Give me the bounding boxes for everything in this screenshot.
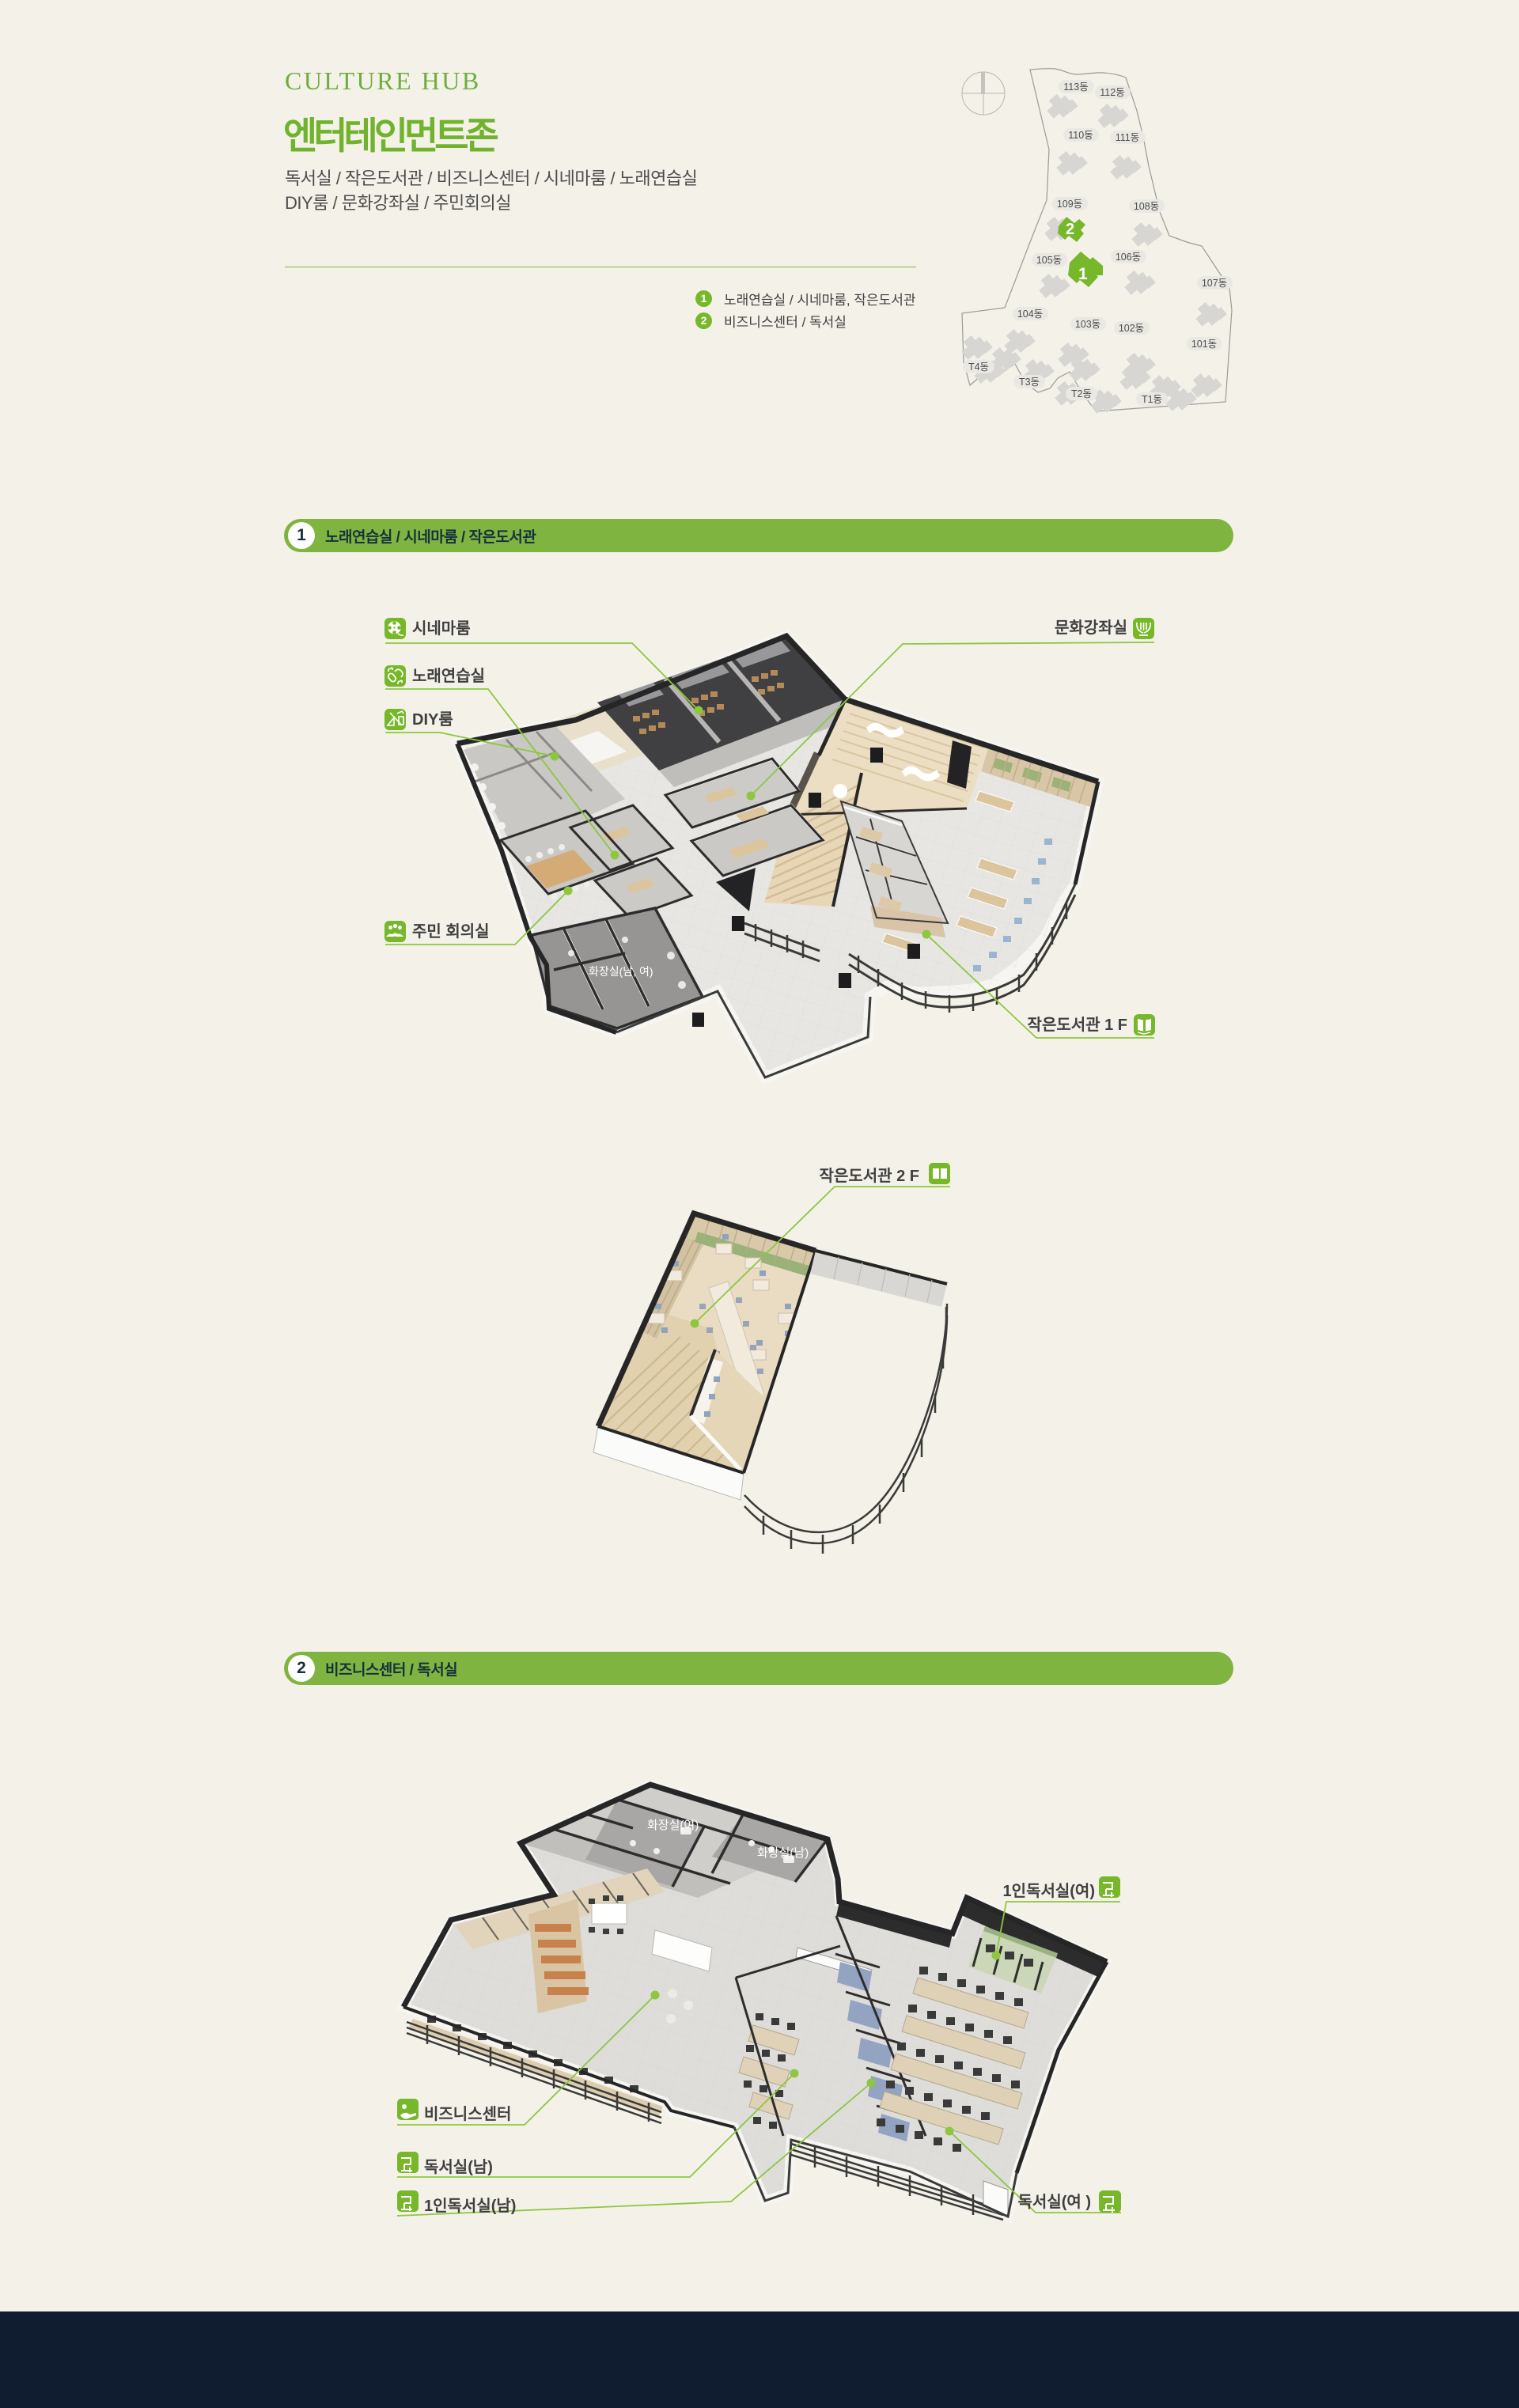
svg-text:T2동: T2동	[1071, 388, 1092, 399]
svg-text:DIY룸: DIY룸	[412, 710, 453, 729]
svg-text:1인독서실(남): 1인독서실(남)	[424, 2197, 516, 2215]
svg-text:101동: 101동	[1191, 339, 1217, 350]
svg-text:화장실(여): 화장실(여)	[647, 1819, 699, 1832]
svg-text:T4동: T4동	[968, 362, 989, 373]
svg-text:113동: 113동	[1063, 81, 1088, 93]
svg-text:노래연습실: 노래연습실	[412, 667, 485, 685]
svg-text:작은도서관 1 F: 작은도서관 1 F	[1028, 1016, 1127, 1034]
svg-text:작은도서관 2 F: 작은도서관 2 F	[820, 1167, 919, 1185]
svg-text:T1동: T1동	[1142, 394, 1162, 405]
svg-text:106동: 106동	[1116, 252, 1141, 263]
svg-text:1: 1	[1078, 265, 1088, 283]
svg-text:107동: 107동	[1202, 278, 1227, 289]
svg-text:2: 2	[1066, 221, 1074, 238]
svg-text:103동: 103동	[1075, 319, 1100, 330]
svg-text:105동: 105동	[1036, 255, 1062, 266]
svg-text:108동: 108동	[1134, 201, 1159, 212]
svg-text:112동: 112동	[1100, 87, 1124, 98]
svg-text:104동: 104동	[1017, 309, 1043, 320]
svg-text:주민 회의실: 주민 회의실	[412, 922, 490, 941]
svg-text:독서실(남): 독서실(남)	[424, 2158, 493, 2176]
svg-text:111동: 111동	[1116, 132, 1140, 143]
svg-text:T3동: T3동	[1019, 377, 1040, 388]
svg-text:시네마룸: 시네마룸	[412, 619, 471, 638]
svg-text:1인독서실(여): 1인독서실(여)	[1003, 1882, 1095, 1900]
svg-text:109동: 109동	[1057, 199, 1082, 210]
svg-text:독서실(여 ): 독서실(여 )	[1018, 2193, 1091, 2211]
svg-text:비즈니스센터: 비즈니스센터	[424, 2105, 511, 2123]
svg-text:화장실(남, 여): 화장실(남, 여)	[589, 965, 653, 978]
svg-text:102동: 102동	[1119, 323, 1144, 334]
svg-text:110동: 110동	[1068, 130, 1093, 141]
svg-text:문화강좌실: 문화강좌실	[1055, 619, 1127, 637]
svg-text:화장실(남): 화장실(남)	[757, 1846, 809, 1860]
